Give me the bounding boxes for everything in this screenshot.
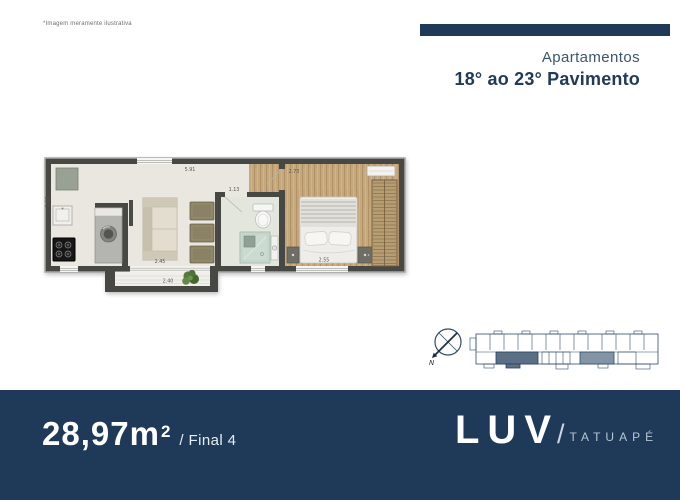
area-value: 28,97m xyxy=(42,416,160,452)
keyplan-highlighted-unit xyxy=(496,352,538,368)
wall-shelf xyxy=(367,166,395,176)
kitchen-sink xyxy=(53,206,72,225)
page-title: 18° ao 23° Pavimento xyxy=(455,69,640,90)
header-divider-bar xyxy=(420,24,670,36)
sofa xyxy=(143,198,177,260)
unit-area-label: 28,97m 2 / Final 4 xyxy=(42,416,236,452)
disclaimer-text: *Imagem meramente ilustrativa xyxy=(43,21,132,27)
apartment-floor-plan: 5.91 1.13 2.73 2.45 2.40 2.55 2.08 xyxy=(38,150,418,300)
logo-brand-text: LUV xyxy=(455,410,559,450)
dimension-label: 2.55 xyxy=(319,258,330,264)
balcony-sliding-door xyxy=(130,266,210,272)
logo-separator: / xyxy=(557,421,565,448)
tv-panel xyxy=(129,200,133,226)
nightstand-left xyxy=(287,247,299,263)
keyplan-core-block xyxy=(580,352,614,364)
dimension-label: 2.40 xyxy=(163,279,174,285)
dimension-label: 2.45 xyxy=(155,259,166,265)
washing-machine xyxy=(95,208,122,263)
dimension-label: 5.91 xyxy=(185,167,196,173)
area-exponent: 2 xyxy=(161,422,170,442)
kitchen-window xyxy=(60,266,78,272)
logo-location-text: TATUAPÉ xyxy=(570,430,659,444)
cooktop xyxy=(53,238,75,261)
dimension-label: 2.73 xyxy=(289,169,300,175)
wardrobe xyxy=(372,180,397,266)
unit-final-label: / Final 4 xyxy=(179,432,236,449)
shower xyxy=(240,232,270,263)
nightstand-right xyxy=(358,247,372,263)
brand-logo: LUV / TATUAPÉ xyxy=(455,410,658,450)
bathroom-sink xyxy=(271,236,278,260)
bed xyxy=(300,197,357,263)
fridge xyxy=(56,168,78,190)
page-header: Apartamentos 18° ao 23° Pavimento xyxy=(455,49,640,90)
building-key-plan xyxy=(468,318,668,378)
bedroom-window xyxy=(296,266,348,272)
living-window xyxy=(137,158,172,164)
dimension-label: 2.08 xyxy=(45,197,51,208)
dimension-label: 1.13 xyxy=(229,187,240,193)
dining-chairs xyxy=(190,202,214,263)
header-subtitle: Apartamentos xyxy=(455,49,640,66)
bathroom-window xyxy=(251,266,265,272)
north-compass-icon: N xyxy=(424,322,472,370)
compass-north-label: N xyxy=(429,359,435,367)
